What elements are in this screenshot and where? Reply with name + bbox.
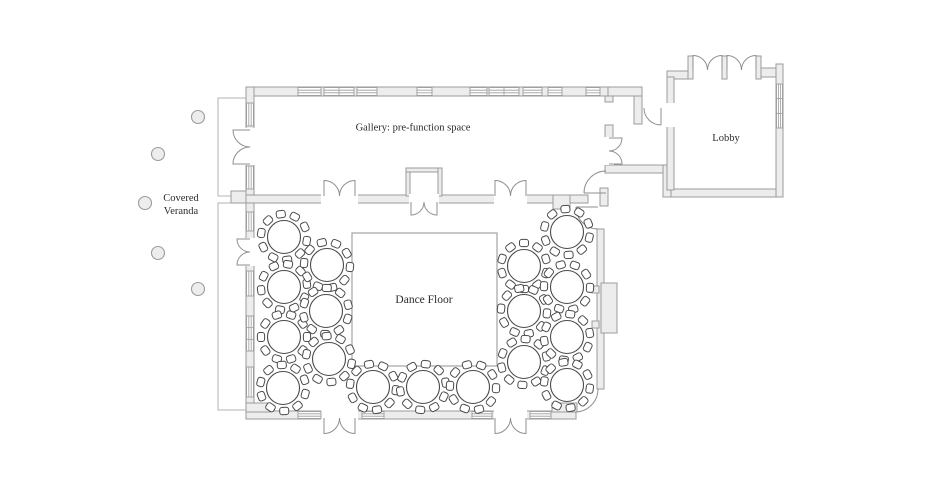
chair-icon — [439, 391, 449, 402]
chair-icon — [257, 333, 264, 342]
table-circle — [311, 249, 344, 282]
chair-icon — [546, 209, 558, 220]
chair-icon — [258, 241, 268, 252]
chair-icon — [505, 242, 517, 253]
guest-table — [396, 360, 450, 414]
chair-icon — [582, 341, 592, 352]
chair-icon — [346, 262, 354, 272]
table-circle — [551, 321, 584, 354]
chair-icon — [497, 304, 505, 314]
window-icon — [298, 412, 321, 419]
chair-icon — [299, 221, 309, 232]
chair-icon — [276, 210, 286, 218]
table-circle — [551, 369, 584, 402]
chair-icon — [448, 394, 459, 405]
double-door-icon — [324, 418, 355, 434]
chair-icon — [569, 260, 580, 270]
gallery-label: Gallery: pre-function space — [356, 123, 471, 134]
table-circle — [457, 371, 490, 404]
chair-icon — [581, 268, 592, 279]
chair-icon — [492, 384, 500, 393]
chair-icon — [506, 337, 517, 348]
chair-icon — [388, 371, 399, 382]
window-icon — [247, 316, 254, 351]
chair-icon — [565, 310, 575, 318]
chair-icon — [317, 238, 327, 247]
chair-icon — [497, 268, 507, 279]
double-door-icon — [495, 418, 526, 434]
chair-icon — [549, 246, 560, 257]
chair-icon — [384, 397, 395, 408]
table-circle — [313, 343, 346, 376]
chair-icon — [585, 384, 594, 394]
lobby-label: Lobby — [712, 133, 740, 144]
chair-icon — [268, 261, 279, 271]
window-icon — [586, 88, 600, 96]
chair-icon — [330, 239, 341, 249]
chair-icon — [263, 364, 275, 375]
chair-icon — [372, 405, 382, 414]
chair-icon — [292, 400, 304, 411]
table-circle — [268, 221, 301, 254]
chair-icon — [446, 381, 454, 390]
chair-icon — [583, 218, 593, 229]
guest-table — [346, 360, 400, 414]
chair-icon — [503, 374, 515, 385]
chair-icon — [303, 363, 313, 374]
window-icon — [247, 212, 254, 231]
chair-icon — [518, 381, 527, 389]
guest-table — [299, 284, 353, 338]
door-swing-icon — [644, 108, 661, 125]
window-icon — [470, 88, 487, 96]
window-icon — [247, 367, 254, 397]
chair-icon — [300, 258, 308, 268]
chair-icon — [485, 396, 496, 408]
chair-icon — [333, 325, 344, 336]
window-icon — [489, 88, 519, 96]
chair-icon — [322, 332, 332, 340]
chair-icon — [322, 284, 331, 292]
chair-icon — [487, 369, 498, 380]
double-door-icon — [324, 181, 355, 197]
chair-icon — [501, 290, 512, 302]
chair-icon — [579, 295, 590, 307]
chair-icon — [343, 313, 353, 324]
chair-icon — [578, 396, 589, 407]
chair-icon — [541, 254, 551, 265]
chair-icon — [540, 221, 549, 231]
chair-icon — [294, 248, 305, 259]
window-icon — [324, 88, 354, 96]
guest-table — [540, 260, 594, 314]
chair-icon — [402, 398, 413, 409]
chair-icon — [540, 336, 549, 346]
veranda-column — [192, 283, 205, 296]
chair-icon — [339, 274, 350, 286]
chair-icon — [327, 378, 337, 386]
chair-icon — [509, 327, 520, 337]
floor-plan-drawing: Gallery: pre-function space Lobby Covere… — [0, 0, 950, 479]
chair-icon — [277, 361, 286, 369]
double-door-icon — [495, 181, 526, 197]
chair-icon — [301, 389, 310, 400]
window-icon — [247, 271, 254, 296]
window-icon — [417, 88, 432, 96]
chair-icon — [586, 283, 594, 292]
chair-icon — [572, 359, 583, 370]
chair-icon — [346, 379, 354, 389]
chair-icon — [260, 318, 271, 330]
chair-icon — [514, 284, 524, 293]
chair-icon — [558, 358, 568, 367]
table-circle — [268, 321, 301, 354]
veranda-label-line2: Veranda — [164, 206, 199, 217]
chair-icon — [258, 271, 269, 282]
guest-table — [257, 210, 311, 264]
chair-icon — [335, 334, 346, 345]
window-icon — [298, 88, 321, 96]
chair-icon — [449, 367, 460, 379]
chair-icon — [585, 328, 594, 338]
chair-icon — [289, 211, 300, 222]
chair-icon — [260, 345, 271, 357]
chair-icon — [585, 232, 594, 242]
chair-icon — [312, 374, 323, 385]
chair-icon — [290, 363, 301, 374]
chair-icon — [257, 228, 266, 238]
chair-icon — [257, 285, 265, 295]
chair-icon — [532, 242, 544, 253]
double-door-icon — [693, 56, 722, 71]
table-circle — [508, 250, 541, 283]
window-icon — [247, 103, 254, 126]
chair-icon — [286, 354, 297, 364]
guest-table — [446, 360, 500, 414]
table-circle — [267, 372, 300, 405]
chair-icon — [541, 390, 552, 401]
chair-icon — [421, 360, 431, 368]
chair-icon — [561, 205, 570, 213]
window-icon — [777, 84, 783, 128]
chair-icon — [302, 349, 311, 359]
floor-plan-page: Gallery: pre-function space Lobby Covere… — [0, 0, 950, 479]
table-circle — [268, 271, 301, 304]
double-door-icon — [727, 56, 756, 71]
chair-icon — [573, 207, 584, 218]
chair-icon — [543, 309, 551, 319]
chair-icon — [499, 317, 510, 328]
chair-icon — [257, 391, 267, 402]
window-icon — [530, 412, 551, 419]
chair-icon — [262, 297, 273, 308]
chair-icon — [396, 386, 405, 396]
chair-icon — [280, 407, 289, 415]
table-circle — [551, 271, 584, 304]
veranda-label-line1: Covered — [163, 193, 199, 204]
chair-icon — [415, 406, 425, 414]
chair-icon — [268, 252, 279, 263]
table-circle — [551, 216, 584, 249]
chair-icon — [256, 377, 265, 388]
chair-icon — [566, 403, 576, 412]
table-circle — [508, 346, 541, 379]
guest-table — [540, 205, 594, 259]
chair-icon — [564, 251, 573, 259]
chair-icon — [555, 260, 566, 269]
table-circle — [357, 371, 390, 404]
window-icon — [523, 88, 542, 96]
chair-icon — [283, 260, 293, 269]
chair-icon — [520, 239, 529, 246]
chair-icon — [576, 244, 588, 255]
dance-floor-label: Dance Floor — [395, 294, 452, 306]
chair-icon — [497, 362, 506, 372]
window-icon — [247, 166, 254, 189]
table-circle — [407, 371, 440, 404]
chair-icon — [582, 369, 593, 380]
chair-icon — [554, 304, 565, 314]
chair-icon — [300, 374, 310, 385]
chair-icon — [397, 372, 407, 383]
chair-icon — [521, 335, 530, 343]
chair-icon — [497, 254, 507, 265]
chair-icon — [341, 247, 352, 258]
window-icon — [357, 88, 377, 96]
table-circle — [310, 295, 343, 328]
guest-table — [302, 332, 356, 386]
chair-icon — [498, 348, 508, 359]
veranda-column — [192, 111, 205, 124]
chair-icon — [541, 235, 551, 246]
chair-icon — [272, 310, 283, 320]
veranda-column — [152, 247, 165, 260]
table-circle — [508, 295, 541, 328]
window-icon — [548, 88, 562, 96]
chair-icon — [577, 315, 588, 326]
chair-icon — [347, 392, 358, 403]
chair-icon — [262, 215, 273, 226]
veranda-column — [152, 148, 165, 161]
veranda-column — [139, 197, 152, 210]
chair-icon — [540, 282, 548, 291]
chair-icon — [540, 376, 549, 386]
chair-icon — [364, 360, 374, 369]
